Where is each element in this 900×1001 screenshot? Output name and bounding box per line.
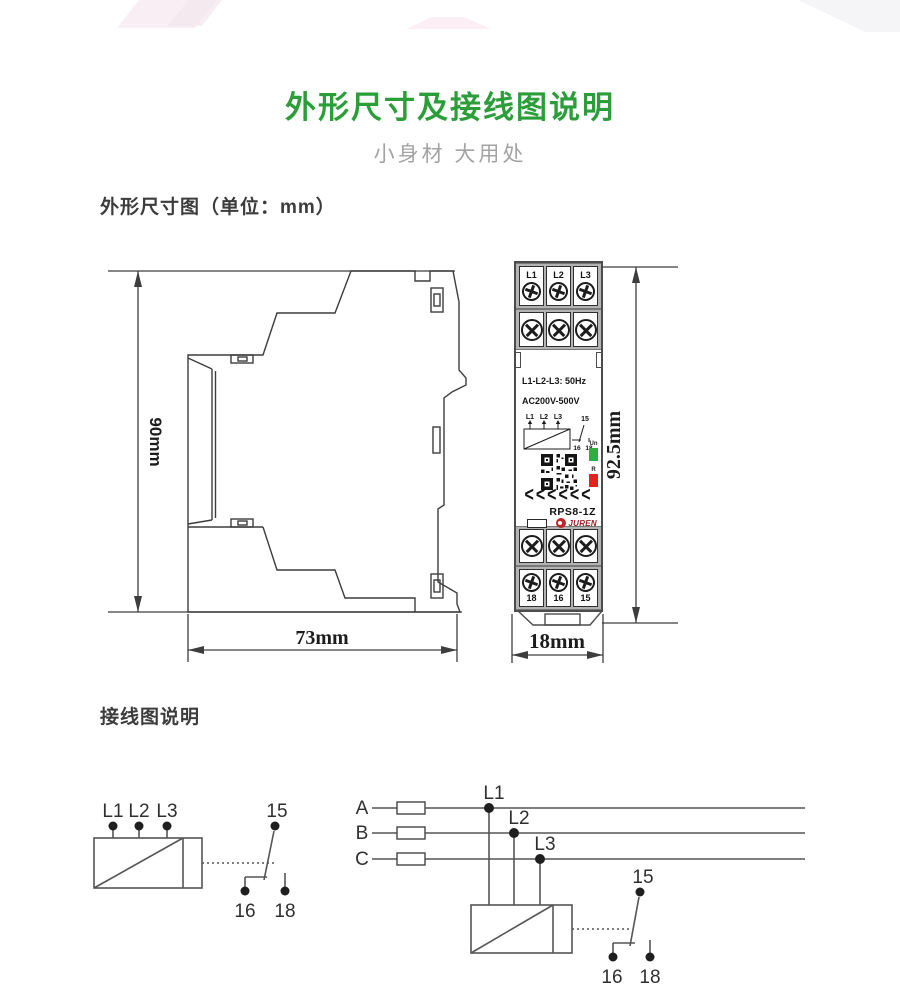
- front-view-device: L1 L2 L3 L1-L2-L3: 50Hz AC200V-500V: [514, 261, 603, 612]
- terminal-l1: L1: [519, 266, 544, 306]
- contact-label-15: 15: [632, 867, 653, 888]
- front-height-dimension: 92.5mm: [596, 258, 682, 638]
- phase-label-c: C: [355, 849, 369, 870]
- wiring-diagram-three-phase: A B C L1 L2 L3 15 16 18: [346, 783, 816, 998]
- terminal-block-bottom-screws: [516, 526, 601, 566]
- mini-wiring-diagram: L1 L2 L3 15 16 18: [520, 412, 600, 452]
- phase-lines: [372, 808, 805, 859]
- terminal-cell: [546, 312, 571, 347]
- wiring-diagram-simple: L1 L2 L3 15 16 18: [88, 793, 328, 928]
- front-height-dimension-label: 92.5mm: [603, 411, 625, 480]
- side-height-dimension-label: 90mm: [146, 417, 165, 466]
- terminal-label: 15: [580, 594, 590, 603]
- phase-label-b: B: [356, 823, 369, 844]
- terminal-l3: L3: [573, 266, 598, 306]
- chevron-arrows-icon: <<<<<<: [516, 486, 601, 506]
- terminal-block-top-screws: [516, 309, 601, 350]
- contact-label-16: 16: [234, 901, 255, 922]
- terminal-18: 18: [519, 569, 544, 607]
- terminal-cell: [573, 529, 598, 563]
- brand-name: JUREN: [568, 519, 597, 528]
- wiring-terminal-dots: [109, 822, 290, 896]
- screw-icon: [573, 570, 597, 594]
- screw-icon: [543, 530, 574, 561]
- screw-icon: [519, 570, 543, 594]
- contact-label-16: 16: [601, 967, 622, 988]
- wiring-lines: [94, 830, 285, 888]
- label-window: [527, 519, 547, 528]
- model-number: RPS8-1Z: [549, 506, 596, 518]
- product-detail-page: 外形尺寸及接线图说明 小身材 大用处 外形尺寸图（单位：mm） 接线图说明 90…: [0, 0, 900, 1001]
- terminal-block-bottom-labeled: 18 16 15: [516, 566, 601, 610]
- terminal-label: L1: [526, 271, 537, 280]
- front-width-dimension: 18mm: [500, 611, 620, 671]
- wiring-section-heading: 接线图说明: [100, 702, 200, 729]
- tap-label-l3: L3: [534, 834, 555, 855]
- terminal-cell: [519, 312, 544, 347]
- mini-nc-label: 16: [573, 445, 581, 452]
- dimension-arrowheads: [134, 271, 457, 654]
- dimensions-section-heading: 外形尺寸图（单位：mm）: [100, 192, 336, 219]
- screw-icon: [516, 314, 547, 345]
- contact-label-18: 18: [274, 901, 295, 922]
- mini-input-label: L1: [526, 414, 534, 421]
- fuse-symbols: [397, 802, 425, 865]
- input-label: L2: [128, 801, 149, 822]
- spec-voltage: AC200V-500V: [522, 396, 580, 406]
- screw-icon: [519, 280, 543, 304]
- terminal-15: 15: [573, 569, 598, 607]
- terminal-l2: L2: [546, 266, 571, 306]
- screw-icon: [573, 280, 597, 304]
- tap-label-l1: L1: [483, 783, 504, 804]
- screw-icon: [546, 280, 570, 304]
- terminal-block-top-labeled: L1 L2 L3: [516, 263, 601, 309]
- page-title: 外形尺寸及接线图说明: [0, 82, 900, 127]
- terminal-16: 16: [546, 569, 571, 607]
- mini-no-label: 15: [581, 416, 589, 423]
- side-width-dimension-label: 73mm: [295, 627, 349, 649]
- terminal-label: L3: [580, 271, 591, 280]
- contact-label-18: 18: [639, 967, 660, 988]
- terminal-cell: [519, 529, 544, 563]
- screw-icon: [546, 570, 570, 594]
- side-view-dimension-drawing: 90mm 73mm: [100, 252, 480, 672]
- side-profile-outline: [188, 271, 466, 612]
- front-width-dimension-label: 18mm: [529, 629, 585, 653]
- case-tab: [515, 352, 521, 368]
- wiring-lines: [471, 808, 650, 953]
- device-front-panel: L1-L2-L3: 50Hz AC200V-500V: [516, 350, 601, 526]
- input-label: L3: [156, 801, 177, 822]
- spec-frequency: L1-L2-L3: 50Hz: [522, 376, 586, 386]
- decorative-shape: [395, 17, 491, 29]
- input-label: L1: [102, 801, 123, 822]
- terminal-label: 16: [553, 594, 563, 603]
- brand-logo-icon: [556, 518, 566, 528]
- contact-label-15: 15: [266, 801, 287, 822]
- mini-input-label: L2: [540, 414, 548, 421]
- terminal-cell: [573, 312, 598, 347]
- brand-logo: JUREN: [556, 518, 597, 528]
- phase-label-a: A: [356, 798, 369, 819]
- brand-row: JUREN: [527, 518, 597, 528]
- tap-label-l2: L2: [508, 808, 529, 829]
- page-subtitle: 小身材 大用处: [0, 138, 900, 168]
- terminal-label: L2: [553, 271, 564, 280]
- terminal-cell: [546, 529, 571, 563]
- decorative-shape: [798, 0, 900, 32]
- screw-icon: [516, 530, 547, 561]
- mini-input-label: L3: [554, 414, 562, 421]
- terminal-label: 18: [526, 594, 536, 603]
- screw-icon: [543, 314, 574, 345]
